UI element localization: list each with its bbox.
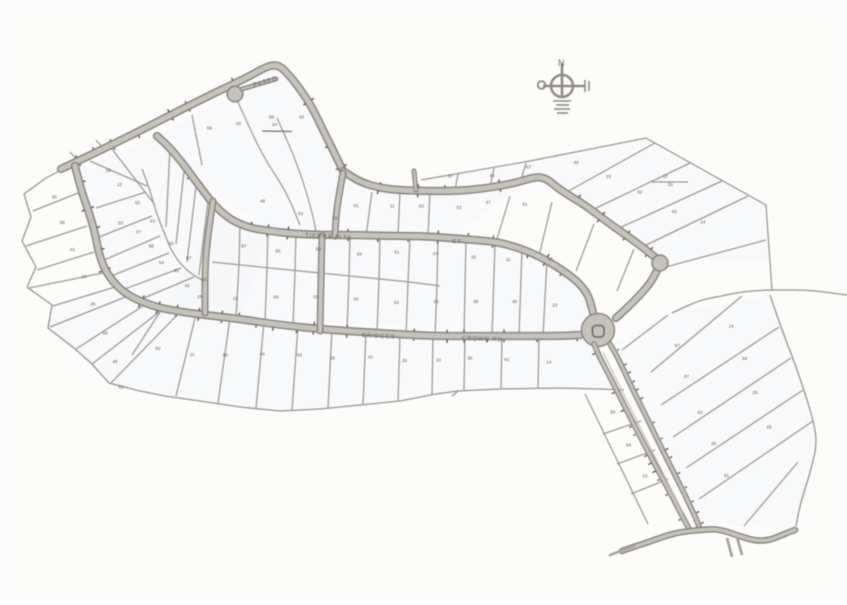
svg-text:56: 56 [149, 243, 155, 248]
svg-text:24: 24 [433, 251, 439, 256]
svg-text:CT: CT [452, 239, 462, 246]
svg-text:N: N [558, 58, 565, 68]
svg-text:15: 15 [606, 174, 612, 179]
svg-text:25: 25 [330, 355, 336, 360]
svg-text:18: 18 [197, 294, 203, 299]
svg-text:11: 11 [390, 204, 395, 209]
svg-text:55: 55 [276, 249, 282, 254]
svg-text:44: 44 [574, 160, 580, 165]
svg-text:53: 53 [316, 246, 322, 251]
svg-text:40: 40 [697, 410, 703, 415]
svg-text:33: 33 [313, 295, 319, 300]
svg-text:56: 56 [103, 330, 109, 335]
svg-text:39: 39 [467, 355, 473, 360]
svg-text:37: 37 [136, 229, 142, 234]
svg-text:24: 24 [272, 122, 278, 127]
svg-text:64: 64 [742, 356, 748, 361]
svg-text:51: 51 [668, 182, 674, 187]
svg-text:67: 67 [241, 244, 247, 249]
svg-text:61: 61 [724, 473, 730, 478]
svg-text:53: 53 [297, 352, 303, 357]
svg-text:26: 26 [753, 390, 759, 395]
svg-text:43: 43 [672, 209, 678, 214]
svg-text:57: 57 [684, 374, 690, 379]
svg-text:61: 61 [523, 201, 529, 206]
svg-text:53: 53 [457, 205, 463, 210]
svg-text:57: 57 [448, 174, 454, 179]
svg-text:42: 42 [185, 283, 191, 288]
svg-text:11: 11 [190, 352, 195, 357]
svg-text:67: 67 [186, 256, 192, 261]
svg-text:26: 26 [711, 441, 717, 446]
svg-text:62: 62 [419, 204, 425, 209]
svg-text:16: 16 [353, 297, 359, 302]
svg-text:38: 38 [473, 299, 479, 304]
svg-text:10: 10 [436, 357, 442, 362]
svg-text:47: 47 [486, 200, 492, 205]
svg-text:50: 50 [118, 220, 124, 225]
svg-text:50: 50 [223, 352, 229, 357]
svg-text:67: 67 [526, 165, 532, 170]
svg-text:56: 56 [610, 410, 616, 415]
svg-text:57: 57 [663, 174, 669, 179]
svg-text:42: 42 [299, 115, 305, 120]
svg-text:23: 23 [642, 473, 648, 478]
svg-text:14: 14 [546, 360, 552, 365]
svg-text:28: 28 [90, 302, 96, 307]
svg-text:50: 50 [155, 346, 161, 351]
svg-text:41: 41 [368, 355, 374, 360]
svg-text:15: 15 [471, 255, 477, 260]
svg-text:49: 49 [112, 359, 118, 364]
svg-text:13: 13 [552, 302, 558, 307]
svg-text:44: 44 [260, 352, 266, 357]
svg-text:62: 62 [333, 216, 339, 221]
svg-text:11: 11 [506, 257, 511, 262]
svg-text:57: 57 [675, 343, 681, 348]
svg-text:14: 14 [729, 324, 735, 329]
svg-text:58: 58 [626, 442, 632, 447]
svg-text:26: 26 [402, 358, 408, 363]
svg-text:30: 30 [52, 195, 58, 200]
svg-text:61: 61 [504, 357, 510, 362]
svg-text:58: 58 [269, 114, 275, 119]
svg-text:51: 51 [394, 250, 400, 255]
svg-text:54: 54 [357, 251, 363, 256]
svg-text:18: 18 [233, 296, 239, 301]
svg-text:34: 34 [394, 300, 400, 305]
svg-text:61: 61 [354, 203, 360, 208]
svg-text:63: 63 [150, 218, 156, 223]
svg-text:68: 68 [207, 125, 213, 130]
svg-text:56: 56 [60, 220, 66, 225]
svg-text:63: 63 [434, 299, 440, 304]
svg-text:19: 19 [106, 168, 112, 173]
svg-text:55: 55 [169, 241, 175, 246]
svg-text:41: 41 [70, 247, 76, 252]
svg-text:12: 12 [117, 182, 123, 187]
svg-text:12: 12 [548, 257, 554, 262]
svg-text:51: 51 [119, 384, 125, 389]
svg-text:43: 43 [236, 121, 242, 126]
svg-text:63: 63 [298, 211, 304, 216]
svg-text:45: 45 [512, 299, 518, 304]
svg-text:54: 54 [159, 260, 165, 265]
svg-text:50: 50 [273, 294, 279, 299]
svg-text:46: 46 [260, 198, 266, 203]
svg-text:42: 42 [201, 277, 207, 282]
svg-text:14: 14 [700, 220, 706, 225]
svg-text:42: 42 [490, 173, 496, 178]
svg-text:61: 61 [174, 268, 180, 273]
svg-text:62: 62 [135, 200, 141, 205]
svg-text:25: 25 [766, 425, 772, 430]
svg-text:19: 19 [81, 274, 87, 279]
svg-text:52: 52 [637, 190, 643, 195]
